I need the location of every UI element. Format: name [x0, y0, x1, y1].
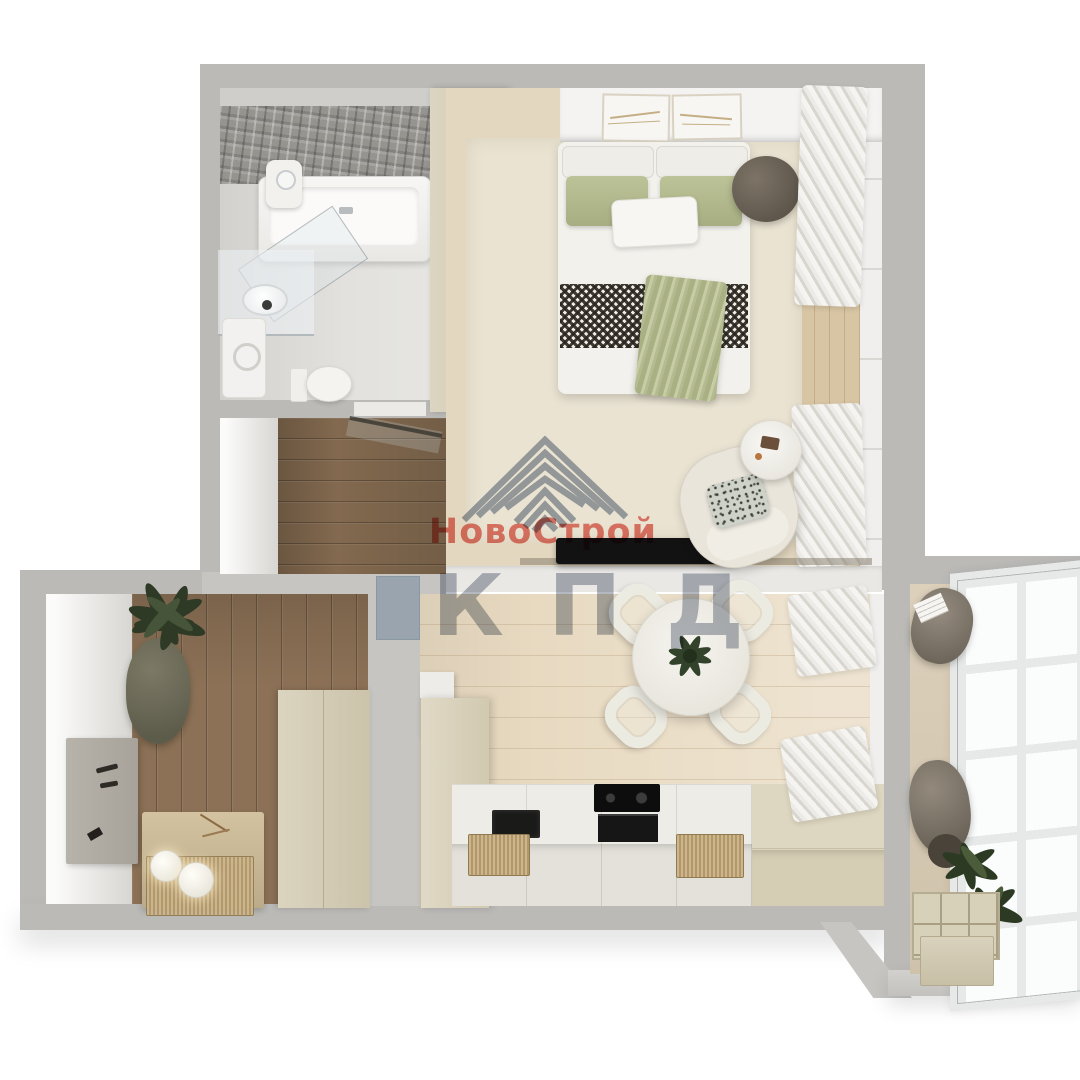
apartment-floorplan-render: НовоСтрой КПД [0, 0, 1080, 1080]
balcony [0, 0, 1080, 1080]
planter-box [920, 936, 994, 986]
